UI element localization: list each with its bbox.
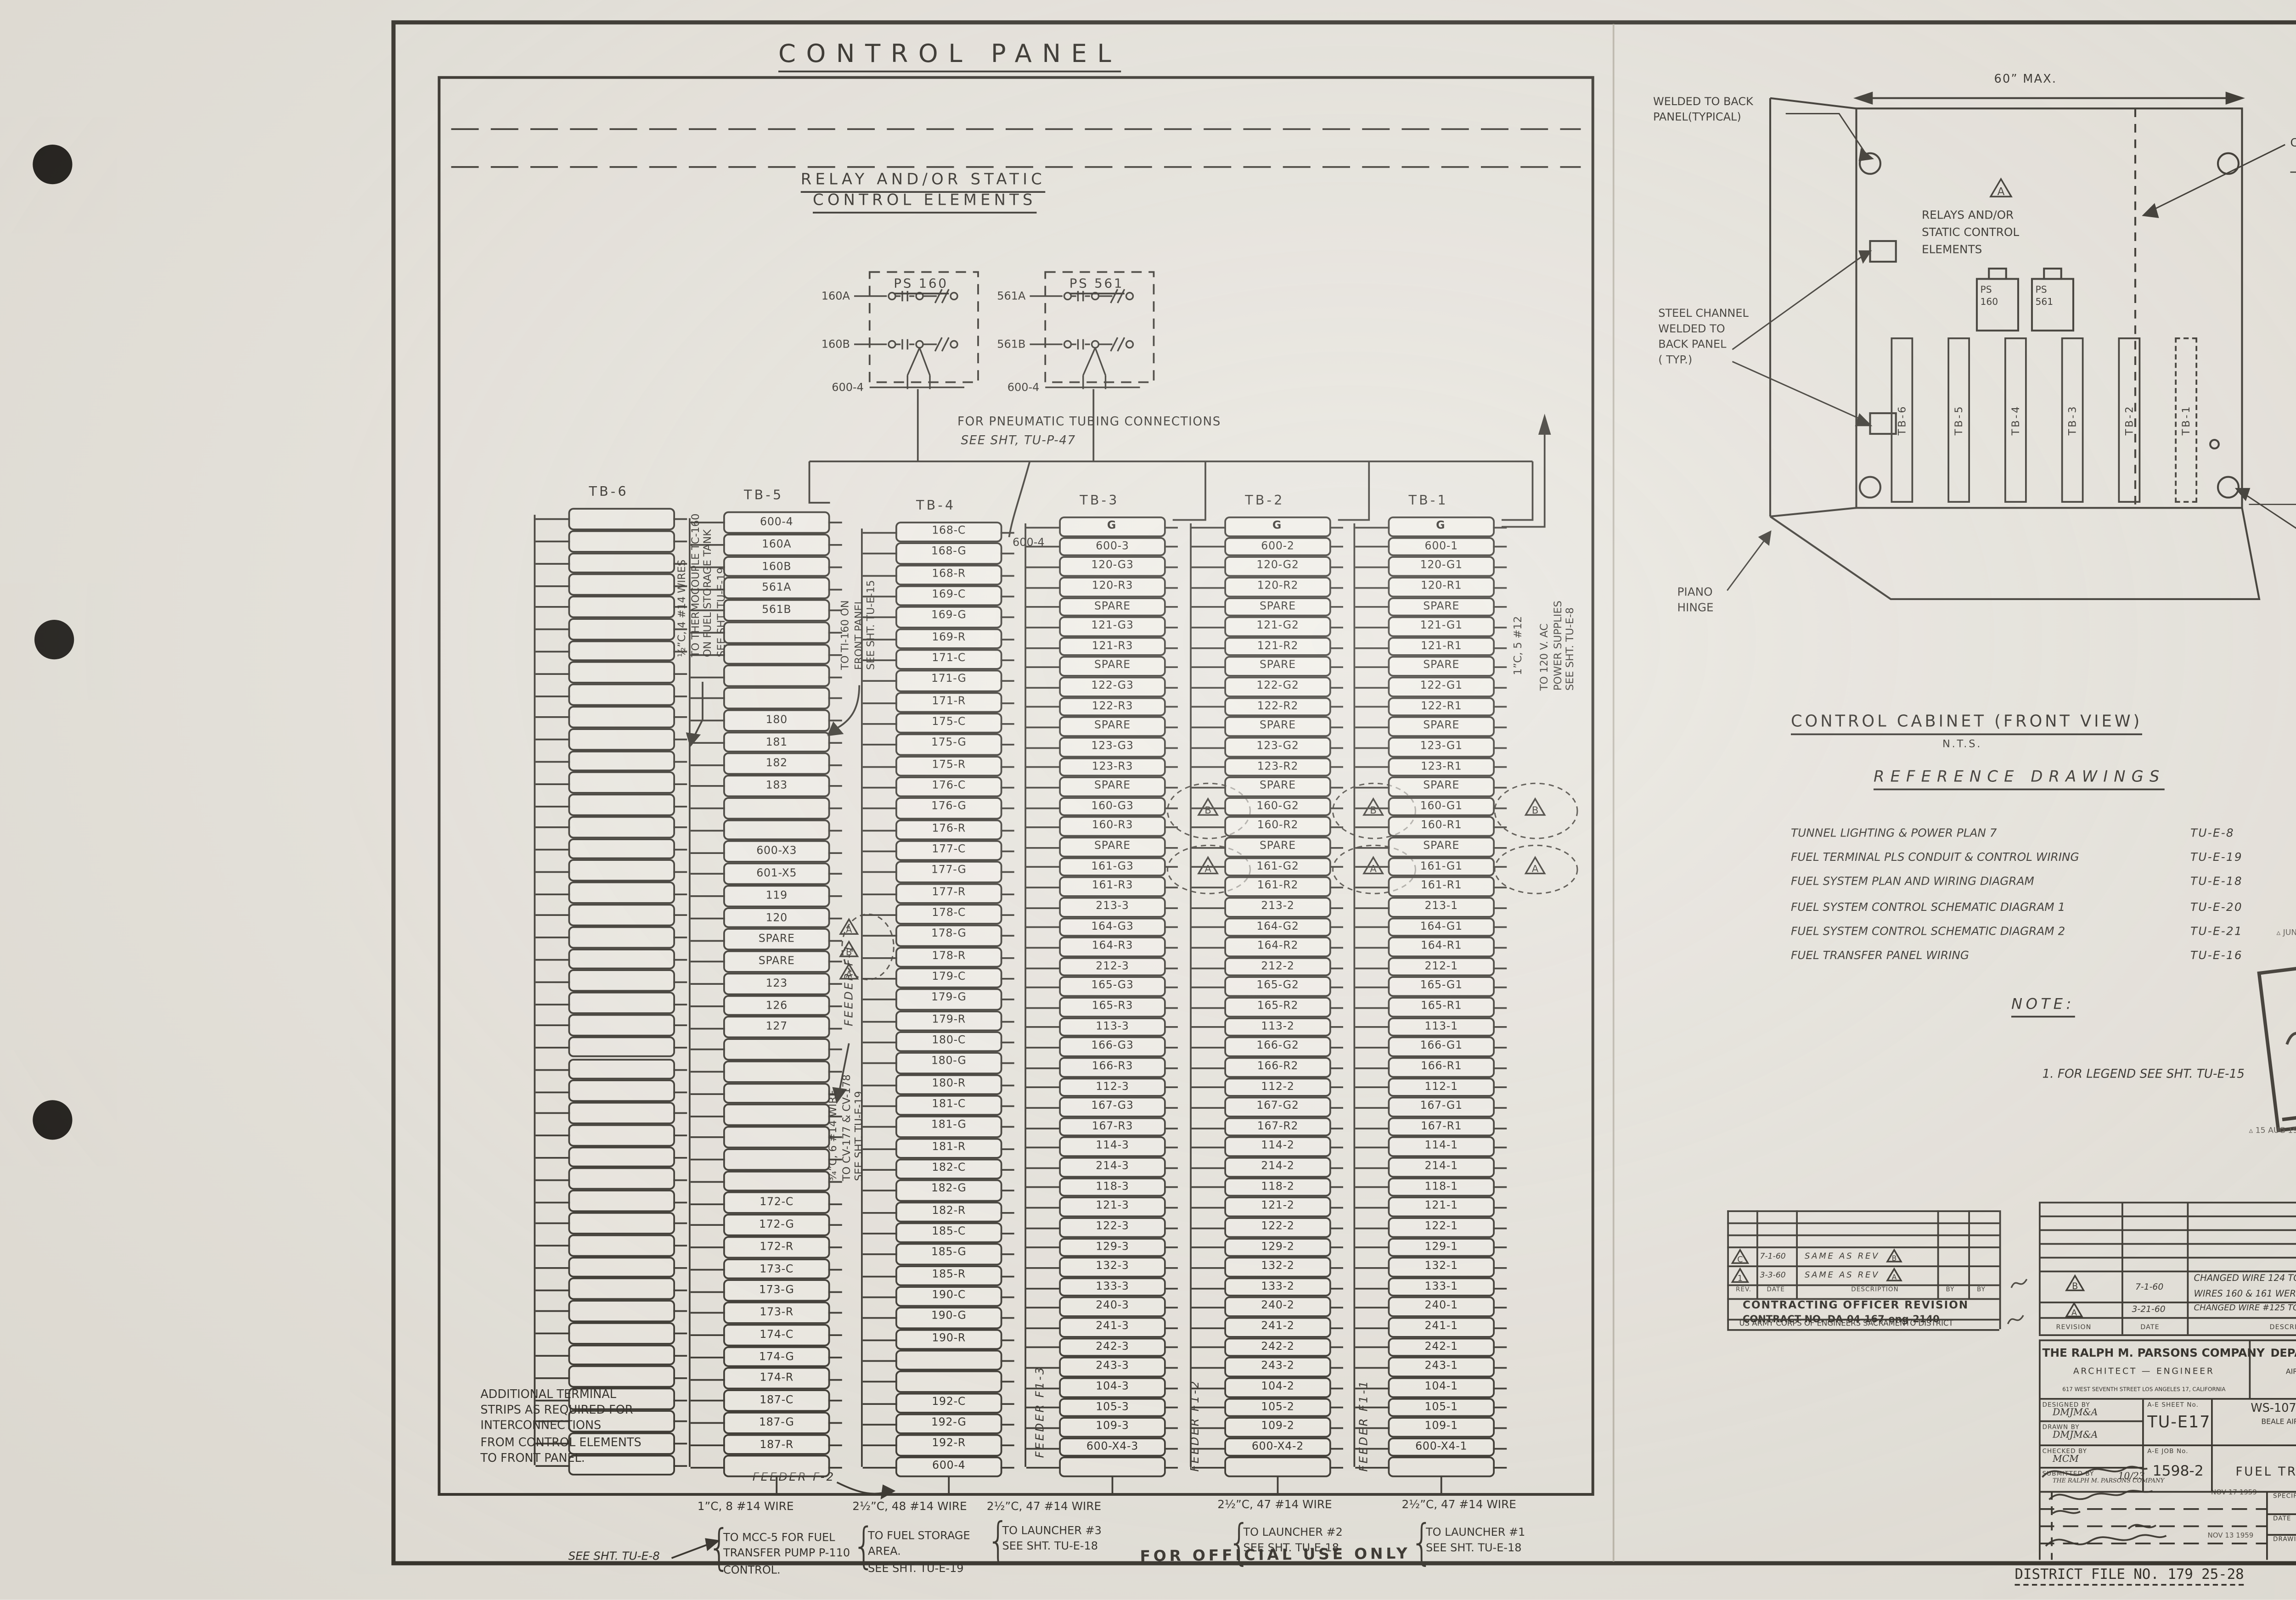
terminal-row bbox=[568, 1212, 675, 1234]
terminal-row: 213-1 bbox=[1388, 897, 1495, 917]
terminal-row: 180-C bbox=[895, 1031, 1002, 1052]
revision-triangle-letter: 1 bbox=[1738, 1274, 1743, 1283]
feeder-f1-label: FEEDER F-1 bbox=[842, 943, 856, 1026]
terminal-row bbox=[568, 684, 675, 706]
wire-600-4-left: 600-4 bbox=[832, 381, 864, 394]
terminal-row: 167-G3 bbox=[1059, 1097, 1166, 1117]
terminal-row: 113-1 bbox=[1388, 1017, 1495, 1037]
terminal-row bbox=[568, 552, 675, 574]
terminal-row: 187-R bbox=[723, 1433, 830, 1455]
terminal-row bbox=[568, 838, 675, 860]
pneumatic-note-2: SEE SHT, TU-P-47 bbox=[961, 434, 1076, 448]
table-line bbox=[2051, 1491, 2053, 1560]
terminal-row: 180-G bbox=[895, 1052, 1002, 1073]
table-line bbox=[2039, 1444, 2142, 1446]
terminal-row bbox=[568, 662, 675, 684]
terminal-row bbox=[568, 816, 675, 838]
terminal-row bbox=[723, 1082, 830, 1104]
terminal-row: 164-G3 bbox=[1059, 917, 1166, 937]
terminal-row: 164-R3 bbox=[1059, 937, 1166, 957]
terminal-row: 121-R1 bbox=[1388, 637, 1495, 657]
right-rev-header: DESCRIPTION bbox=[2270, 1321, 2296, 1330]
relays-elements-label: RELAYS AND/ORSTATIC CONTROLELEMENTS bbox=[1922, 207, 2019, 258]
terminal-row: 182 bbox=[723, 753, 830, 775]
terminal-row: 112-1 bbox=[1388, 1077, 1495, 1097]
terminal-row: 192-G bbox=[895, 1413, 1002, 1434]
terminal-row: 174-R bbox=[723, 1367, 830, 1389]
terminal-row: 165-R2 bbox=[1224, 997, 1331, 1017]
district-file-number: DISTRICT FILE NO. 179 25-28 bbox=[2015, 1565, 2244, 1586]
left-rev-header: DESCRIPTION bbox=[1851, 1286, 1899, 1293]
terminal-row bbox=[568, 882, 675, 904]
terminal-row: SPARE bbox=[1388, 777, 1495, 797]
left-rev-desc: SAME AS REV bbox=[1805, 1253, 1880, 1262]
terminal-row: 600-4 bbox=[723, 511, 830, 533]
left-rev-header: BY bbox=[1946, 1286, 1955, 1293]
terminal-row: 160-R1 bbox=[1388, 817, 1495, 837]
terminal-row bbox=[568, 1014, 675, 1036]
cabinet-tb-strip-label: TB-6 bbox=[1896, 405, 1908, 436]
right-rev-a-line1: CHANGED WIRE #125 TO #123, WIRE #123 TO … bbox=[2194, 1305, 2296, 1314]
terminal-row: 180-R bbox=[895, 1073, 1002, 1095]
terminal-row: 168-R bbox=[895, 564, 1002, 585]
terminal-row bbox=[568, 926, 675, 948]
terminal-row: 121-R2 bbox=[1224, 637, 1331, 657]
table-line bbox=[2039, 1467, 2142, 1469]
terminal-row: 123-R1 bbox=[1388, 757, 1495, 777]
table-line bbox=[1999, 1210, 2001, 1329]
reference-item-number: TU-E-16 bbox=[2190, 949, 2243, 962]
table-line bbox=[2122, 1202, 2123, 1335]
terminal-row: 119 bbox=[723, 885, 830, 907]
wire-rail bbox=[1190, 523, 1192, 1467]
thermocouple-note: ½”C, 4 #14 WIRESTO THERMOCOUPLE TC-160ON… bbox=[676, 514, 729, 657]
terminal-row bbox=[568, 618, 675, 640]
terminal-row: 121-G2 bbox=[1224, 617, 1331, 637]
table-line bbox=[1727, 1265, 1999, 1267]
terminal-row: 132-1 bbox=[1388, 1257, 1495, 1277]
terminal-row: 179-C bbox=[895, 967, 1002, 988]
terminal-row: 122-3 bbox=[1059, 1217, 1166, 1237]
terminal-row bbox=[568, 772, 675, 794]
right-rev-b-date: 7-1-60 bbox=[2135, 1283, 2163, 1293]
agency-name: DEPARTMENT OF THE AIR FORCE bbox=[2252, 1347, 2296, 1360]
agency-address: LOS ANGELES 45, CALIFORNIA bbox=[2252, 1386, 2296, 1393]
table-line bbox=[2142, 1444, 2211, 1446]
table-line bbox=[2249, 1340, 2251, 1398]
terminal-row bbox=[723, 687, 830, 709]
agency-division: AIR FORCE BALLISTIC MISSILE DIVISION (AR… bbox=[2252, 1367, 2296, 1376]
terminal-row: 166-R1 bbox=[1388, 1057, 1495, 1077]
revision-triangle-letter: C bbox=[1737, 1255, 1743, 1264]
table-line bbox=[2266, 1534, 2296, 1536]
revision-triangle bbox=[1887, 1250, 1901, 1261]
terminal-row: 243-1 bbox=[1388, 1357, 1495, 1377]
terminal-row: 165-R1 bbox=[1388, 997, 1495, 1017]
terminal-row: 176-C bbox=[895, 776, 1002, 797]
terminal-row: 132-2 bbox=[1224, 1257, 1331, 1277]
reference-item-number: TU-E-19 bbox=[2190, 851, 2243, 865]
terminal-row: 185-G bbox=[895, 1243, 1002, 1264]
terminal-row: 105-1 bbox=[1388, 1397, 1495, 1417]
revision-triangle bbox=[1199, 857, 1217, 873]
terminal-row: 123-G1 bbox=[1388, 737, 1495, 757]
tb-block-label: TB-2 bbox=[1245, 493, 1284, 508]
terminal-row: 129-2 bbox=[1224, 1237, 1331, 1257]
cv-note: ¾”C, 6 #14 WIRETO CV-177 & CV-178SEE SHT… bbox=[827, 1074, 867, 1181]
conduit-wire-note: 1”C, 8 #14 WIRE bbox=[698, 1499, 794, 1513]
table-line bbox=[2039, 1257, 2296, 1259]
terminal-row: SPARE bbox=[723, 928, 830, 950]
terminal-row bbox=[568, 1300, 675, 1322]
terminal-row: 600-X4-3 bbox=[1059, 1437, 1166, 1457]
revision-triangle-letter: A bbox=[1532, 864, 1539, 875]
terminal-row: 105-2 bbox=[1224, 1397, 1331, 1417]
revision-triangle-letter: A bbox=[2071, 1308, 2077, 1318]
right-rev-b-line2: WIRES 160 & 161 WERE SPARE (6 PLACES) bbox=[2194, 1289, 2296, 1299]
revision-triangle bbox=[1364, 857, 1383, 873]
punch-hole bbox=[33, 1100, 72, 1140]
terminal-row bbox=[1224, 1457, 1331, 1477]
terminal-row: 185-R bbox=[895, 1265, 1002, 1286]
terminal-row: 165-R3 bbox=[1059, 997, 1166, 1017]
terminal-row bbox=[568, 860, 675, 882]
terminal-row: 240-3 bbox=[1059, 1297, 1166, 1317]
terminal-row: 212-1 bbox=[1388, 957, 1495, 977]
terminal-row bbox=[568, 794, 675, 816]
terminal-row: 118-1 bbox=[1388, 1177, 1495, 1197]
terminal-row: 123-G2 bbox=[1224, 737, 1331, 757]
table-line bbox=[2039, 1340, 2296, 1342]
stamp-bottom-date: ▵ 15 AUG 1960 bbox=[2249, 1128, 2296, 1136]
terminal-row: 161-R3 bbox=[1059, 877, 1166, 897]
terminal-row: 174-C bbox=[723, 1324, 830, 1346]
table-line bbox=[1727, 1329, 1999, 1331]
terminal-row: 160B bbox=[723, 555, 830, 577]
terminal-row: 241-3 bbox=[1059, 1317, 1166, 1337]
wire-160b: 160B bbox=[822, 337, 850, 351]
terminal-row: SPARE bbox=[1388, 596, 1495, 617]
ae-job-number: 1598-2 bbox=[2153, 1462, 2204, 1479]
note-item: 1. FOR LEGEND SEE SHT. TU-E-15 bbox=[2043, 1067, 2245, 1081]
reference-item-number: TU-E-18 bbox=[2190, 875, 2243, 889]
welded-to-back-label: WELDED TO BACKPANEL(TYPICAL) bbox=[1653, 95, 1753, 124]
terminal-row bbox=[568, 508, 675, 530]
terminal-row: 120-R1 bbox=[1388, 577, 1495, 597]
terminal-row: 181-G bbox=[895, 1116, 1002, 1137]
reference-item-name: TUNNEL LIGHTING & POWER PLAN 7 bbox=[1791, 826, 1997, 840]
terminal-row: 104-1 bbox=[1388, 1377, 1495, 1398]
terminal-row: 172-G bbox=[723, 1214, 830, 1236]
terminal-row: 120-G2 bbox=[1224, 556, 1331, 577]
terminal-row: 243-2 bbox=[1224, 1357, 1331, 1377]
terminal-row: 166-G1 bbox=[1388, 1037, 1495, 1057]
terminal-row: 122-G2 bbox=[1224, 677, 1331, 697]
wire-160a: 160A bbox=[822, 289, 850, 303]
conduit-wire-note: 2½”C, 47 #14 WIRE bbox=[1402, 1498, 1516, 1512]
cabinet-ps561-label: PS561 bbox=[2036, 286, 2070, 310]
terminal-row: 178-R bbox=[895, 946, 1002, 967]
table-line bbox=[1937, 1210, 1939, 1298]
terminal-row bbox=[568, 1036, 675, 1058]
terminal-row: 185-C bbox=[895, 1222, 1002, 1243]
wire-rail bbox=[1354, 523, 1356, 1467]
terminal-row: 161-R1 bbox=[1388, 877, 1495, 897]
sheet-title: CONTROL PANEL bbox=[778, 41, 1121, 73]
terminal-row: 561B bbox=[723, 599, 830, 621]
terminal-row bbox=[723, 1060, 830, 1082]
terminal-row: 104-2 bbox=[1224, 1377, 1331, 1398]
terminal-row bbox=[568, 1168, 675, 1190]
conduit-destination-note: TO FUEL STORAGEAREA.SEE SHT. TU-E-19 bbox=[868, 1529, 970, 1578]
terminal-row: 109-3 bbox=[1059, 1417, 1166, 1437]
conduit-destination-note: TO LAUNCHER #2SEE SHT. TU-E-18 bbox=[1244, 1526, 1343, 1558]
spec-label: SPECIFICATION NO. bbox=[2273, 1493, 2296, 1499]
terminal-row: 169-C bbox=[895, 585, 1002, 606]
terminal-row: 123-G3 bbox=[1059, 737, 1166, 757]
brace: { bbox=[852, 1518, 875, 1574]
terminal-row: 213-3 bbox=[1059, 897, 1166, 917]
revision-triangle-letter: A bbox=[1997, 185, 2004, 198]
terminal-row bbox=[723, 1126, 830, 1148]
ae-sheet-number: TU-E17 bbox=[2147, 1414, 2211, 1432]
terminal-row: 114-2 bbox=[1224, 1137, 1331, 1157]
terminal-row: 121-R3 bbox=[1059, 637, 1166, 657]
table-line bbox=[2039, 1317, 2296, 1319]
terminal-row: 123-R3 bbox=[1059, 757, 1166, 777]
terminal-row: 190-G bbox=[895, 1307, 1002, 1328]
corps-district: US ARMY CORPS OF ENGINEERS SACRAMENTO DI… bbox=[1739, 1319, 1953, 1328]
right-rev-b-line1: CHANGED WIRE 124 TO SPARE bbox=[2194, 1274, 2296, 1285]
terminal-row: SPARE bbox=[1059, 596, 1166, 617]
terminal-row: 600-2 bbox=[1224, 537, 1331, 557]
stamp-top-date: ▵ JUN 1960 CNC bbox=[2277, 923, 2296, 940]
revision-triangle bbox=[1732, 1269, 1748, 1282]
terminal-row: 121-2 bbox=[1224, 1197, 1331, 1217]
left-rev-desc: SAME AS REV bbox=[1805, 1272, 1880, 1281]
credit-value: THE RALPH M. PARSONS COMPANY bbox=[2053, 1477, 2164, 1484]
terminal-row: 175-R bbox=[895, 755, 1002, 776]
terminal-row: 600-1 bbox=[1388, 537, 1495, 557]
terminal-row: 120 bbox=[723, 906, 830, 928]
terminal-row: 178-C bbox=[895, 904, 1002, 925]
relay-subtitle-2: CONTROL ELEMENTS bbox=[813, 193, 1036, 213]
power-supplies-note: TO 120 V. ACPOWER SUPPLIESSEE SHT. TU-E-… bbox=[1539, 601, 1578, 691]
right-rev-a-date: 3-21-60 bbox=[2132, 1305, 2166, 1316]
brace: { bbox=[1228, 1515, 1251, 1571]
conduit-wire-note: 2½”C, 47 #14 WIRE bbox=[987, 1499, 1101, 1513]
terminal-row: 169-G bbox=[895, 606, 1002, 628]
tb-block-label: TB-1 bbox=[1409, 493, 1448, 508]
revision-triangle-letter: A bbox=[1204, 864, 1211, 875]
table-line bbox=[2266, 1491, 2268, 1560]
terminal-row: 118-3 bbox=[1059, 1177, 1166, 1197]
left-rev-date: 7-1-60 bbox=[1760, 1253, 1786, 1262]
terminal-row: 175-C bbox=[895, 713, 1002, 734]
terminal-row: SPARE bbox=[1059, 777, 1166, 797]
terminal-row: SPARE bbox=[1388, 837, 1495, 857]
revision-triangle bbox=[2066, 1303, 2082, 1317]
terminal-row bbox=[568, 1344, 675, 1366]
table-line bbox=[1796, 1210, 1798, 1298]
terminal-row: 174-G bbox=[723, 1346, 830, 1368]
terminal-row: 600-X4-2 bbox=[1224, 1437, 1331, 1457]
right-rev-header: DATE bbox=[2140, 1321, 2160, 1330]
terminal-row: SPARE bbox=[1059, 837, 1166, 857]
table-line bbox=[2266, 1513, 2296, 1515]
terminal-row: 179-G bbox=[895, 988, 1002, 1010]
terminal-row: 171-R bbox=[895, 691, 1002, 713]
terminal-row: 171-C bbox=[895, 649, 1002, 670]
terminal-row bbox=[568, 1190, 675, 1212]
cabinet-tb-strip-label: TB-4 bbox=[2009, 405, 2021, 436]
table-line bbox=[2039, 1202, 2296, 1204]
terminal-row: 113-2 bbox=[1224, 1017, 1331, 1037]
reference-item-name: FUEL TERMINAL PLS CONDUIT & CONTROL WIRI… bbox=[1791, 851, 2079, 865]
terminal-row: 118-2 bbox=[1224, 1177, 1331, 1197]
terminal-row: 129-3 bbox=[1059, 1237, 1166, 1257]
cabinet-control-panel-label: CONTROL PANEL bbox=[2290, 136, 2296, 150]
contracting-revision-title: CONTRACTING OFFICER REVISION bbox=[1743, 1300, 1969, 1312]
terminal-row: 120-G1 bbox=[1388, 556, 1495, 577]
terminal-row: 190-R bbox=[895, 1328, 1002, 1349]
terminal-row bbox=[723, 797, 830, 819]
reference-item-number: TU-E-20 bbox=[2190, 900, 2243, 914]
brace: { bbox=[1410, 1515, 1433, 1571]
wire-rail bbox=[689, 518, 691, 1467]
steel-channel-label: STEEL CHANNELWELDED TOBACK PANEL( TYP.) bbox=[1658, 307, 1749, 369]
table-line bbox=[2187, 1202, 2189, 1335]
terminal-row bbox=[568, 948, 675, 970]
table-line bbox=[2039, 1334, 2296, 1336]
terminal-row: 172-R bbox=[723, 1236, 830, 1258]
piano-hinge-left-label: PIANOHINGE bbox=[1677, 585, 1714, 618]
revision-triangle bbox=[1525, 857, 1544, 873]
firm-address: 617 WEST SEVENTH STREET LOS ANGELES 17, … bbox=[2043, 1386, 2246, 1393]
terminal-row bbox=[1059, 1457, 1166, 1477]
left-rev-header: BY bbox=[1977, 1286, 1986, 1293]
terminal-row: 112-2 bbox=[1224, 1077, 1331, 1097]
terminal-row: 169-R bbox=[895, 628, 1002, 649]
drawing-number-label: DRAWING NUMBER bbox=[2273, 1536, 2296, 1543]
table-line bbox=[2039, 1398, 2296, 1400]
terminal-row: 173-G bbox=[723, 1280, 830, 1302]
table-line bbox=[1727, 1223, 1999, 1224]
project-line: WS-107 A-2 TECHNICAL FACILITIES bbox=[2215, 1402, 2296, 1415]
terminal-row: 123-R2 bbox=[1224, 757, 1331, 777]
punch-hole bbox=[33, 145, 72, 184]
tb-block-label: TB-4 bbox=[916, 498, 956, 513]
terminal-row: 114-1 bbox=[1388, 1137, 1495, 1157]
terminal-row: 192-R bbox=[895, 1434, 1002, 1455]
terminal-row bbox=[723, 621, 830, 643]
tb-block-label: TB-3 bbox=[1080, 493, 1119, 508]
terminal-row: 183 bbox=[723, 775, 830, 797]
terminal-row bbox=[568, 530, 675, 552]
terminal-row: 178-G bbox=[895, 925, 1002, 946]
terminal-row: 161-G3 bbox=[1059, 857, 1166, 877]
terminal-row bbox=[568, 728, 675, 750]
right-rev-header: REVISION bbox=[2056, 1321, 2092, 1330]
stamp-line1: REVIEWED FOR CONSTRUCTION FEASIBILITY bbox=[2268, 961, 2296, 993]
table-line bbox=[2039, 1202, 2041, 1335]
terminal-row: 161-G2 bbox=[1224, 857, 1331, 877]
terminal-row: 167-G2 bbox=[1224, 1097, 1331, 1117]
revision-triangle-letter: A bbox=[1892, 1273, 1897, 1281]
terminal-row: 166-G2 bbox=[1224, 1037, 1331, 1057]
terminal-row: 121-G1 bbox=[1388, 617, 1495, 637]
terminal-row bbox=[568, 1322, 675, 1344]
terminal-row: SPARE bbox=[1224, 657, 1331, 677]
terminal-row: SPARE bbox=[1059, 717, 1166, 737]
terminal-row bbox=[568, 1234, 675, 1256]
terminal-row bbox=[895, 1349, 1002, 1370]
terminal-row: 600-X4-1 bbox=[1388, 1437, 1495, 1457]
terminal-row bbox=[568, 992, 675, 1014]
terminal-row: 242-2 bbox=[1224, 1337, 1331, 1357]
terminal-row: 173-R bbox=[723, 1302, 830, 1324]
terminal-row: 167-G1 bbox=[1388, 1097, 1495, 1117]
revision-triangle-letter: B bbox=[1532, 805, 1539, 816]
terminal-row: 214-2 bbox=[1224, 1157, 1331, 1177]
table-line bbox=[2039, 1216, 2296, 1218]
terminal-row: 109-2 bbox=[1224, 1417, 1331, 1437]
table-line bbox=[2039, 1543, 2266, 1544]
terminal-row: 121-3 bbox=[1059, 1197, 1166, 1217]
revision-triangle-letter: A bbox=[846, 925, 852, 935]
tb-block-label: TB-5 bbox=[744, 487, 783, 503]
terminal-row: 213-2 bbox=[1224, 897, 1331, 917]
terminal-row bbox=[568, 1080, 675, 1102]
terminal-row: 177-R bbox=[895, 882, 1002, 904]
terminal-row: 561A bbox=[723, 577, 830, 599]
date-label: DATE bbox=[2273, 1515, 2291, 1522]
terminal-row: 161-G1 bbox=[1388, 857, 1495, 877]
revision-triangle-letter: B bbox=[1892, 1254, 1897, 1263]
terminal-row: 133-1 bbox=[1388, 1277, 1495, 1297]
pneumatic-note-1: FOR PNEUMATIC TUBING CONNECTIONS bbox=[957, 415, 1221, 429]
credit-label: DRAWN BY bbox=[2043, 1424, 2080, 1431]
brace: { bbox=[987, 1513, 1010, 1569]
terminal-row: 172-C bbox=[723, 1192, 830, 1214]
terminal-row bbox=[568, 970, 675, 992]
terminal-row: 164-G2 bbox=[1224, 917, 1331, 937]
terminal-row: 600-4 bbox=[895, 1456, 1002, 1477]
additional-terminal-note: ADDITIONAL TERMINALSTRIPS AS REQUIRED FO… bbox=[480, 1388, 641, 1467]
terminal-row: 132-3 bbox=[1059, 1257, 1166, 1277]
punch-hole bbox=[34, 620, 74, 659]
terminal-row: 182-C bbox=[895, 1158, 1002, 1179]
terminal-row: 600-3 bbox=[1059, 537, 1166, 557]
terminal-row: 182-G bbox=[895, 1180, 1002, 1201]
terminal-row: 114-3 bbox=[1059, 1137, 1166, 1157]
conduit-destination-note: TO LAUNCHER #1SEE SHT. TU-E-18 bbox=[1426, 1526, 1525, 1558]
ae-sheet-label: A-E SHEET No. bbox=[2147, 1402, 2199, 1409]
project-line: COMPLEX 1A, 1B & 1C bbox=[2215, 1427, 2296, 1438]
terminal-row: 113-3 bbox=[1059, 1017, 1166, 1037]
terminal-row: 164-R1 bbox=[1388, 937, 1495, 957]
left-rev-header: REV. bbox=[1736, 1286, 1751, 1293]
terminal-row: 133-3 bbox=[1059, 1277, 1166, 1297]
terminal-row: 181 bbox=[723, 731, 830, 753]
wire-600-4-right: 600-4 bbox=[1007, 381, 1040, 394]
terminal-row: 192-C bbox=[895, 1392, 1002, 1413]
power-conduit-label: 1”C, 5 #12 bbox=[1513, 616, 1525, 675]
revision-triangle bbox=[2066, 1276, 2083, 1291]
terminal-row: 109-1 bbox=[1388, 1417, 1495, 1437]
firm-role: ARCHITECT — ENGINEER bbox=[2043, 1367, 2246, 1378]
terminal-row: 167-R2 bbox=[1224, 1117, 1331, 1137]
